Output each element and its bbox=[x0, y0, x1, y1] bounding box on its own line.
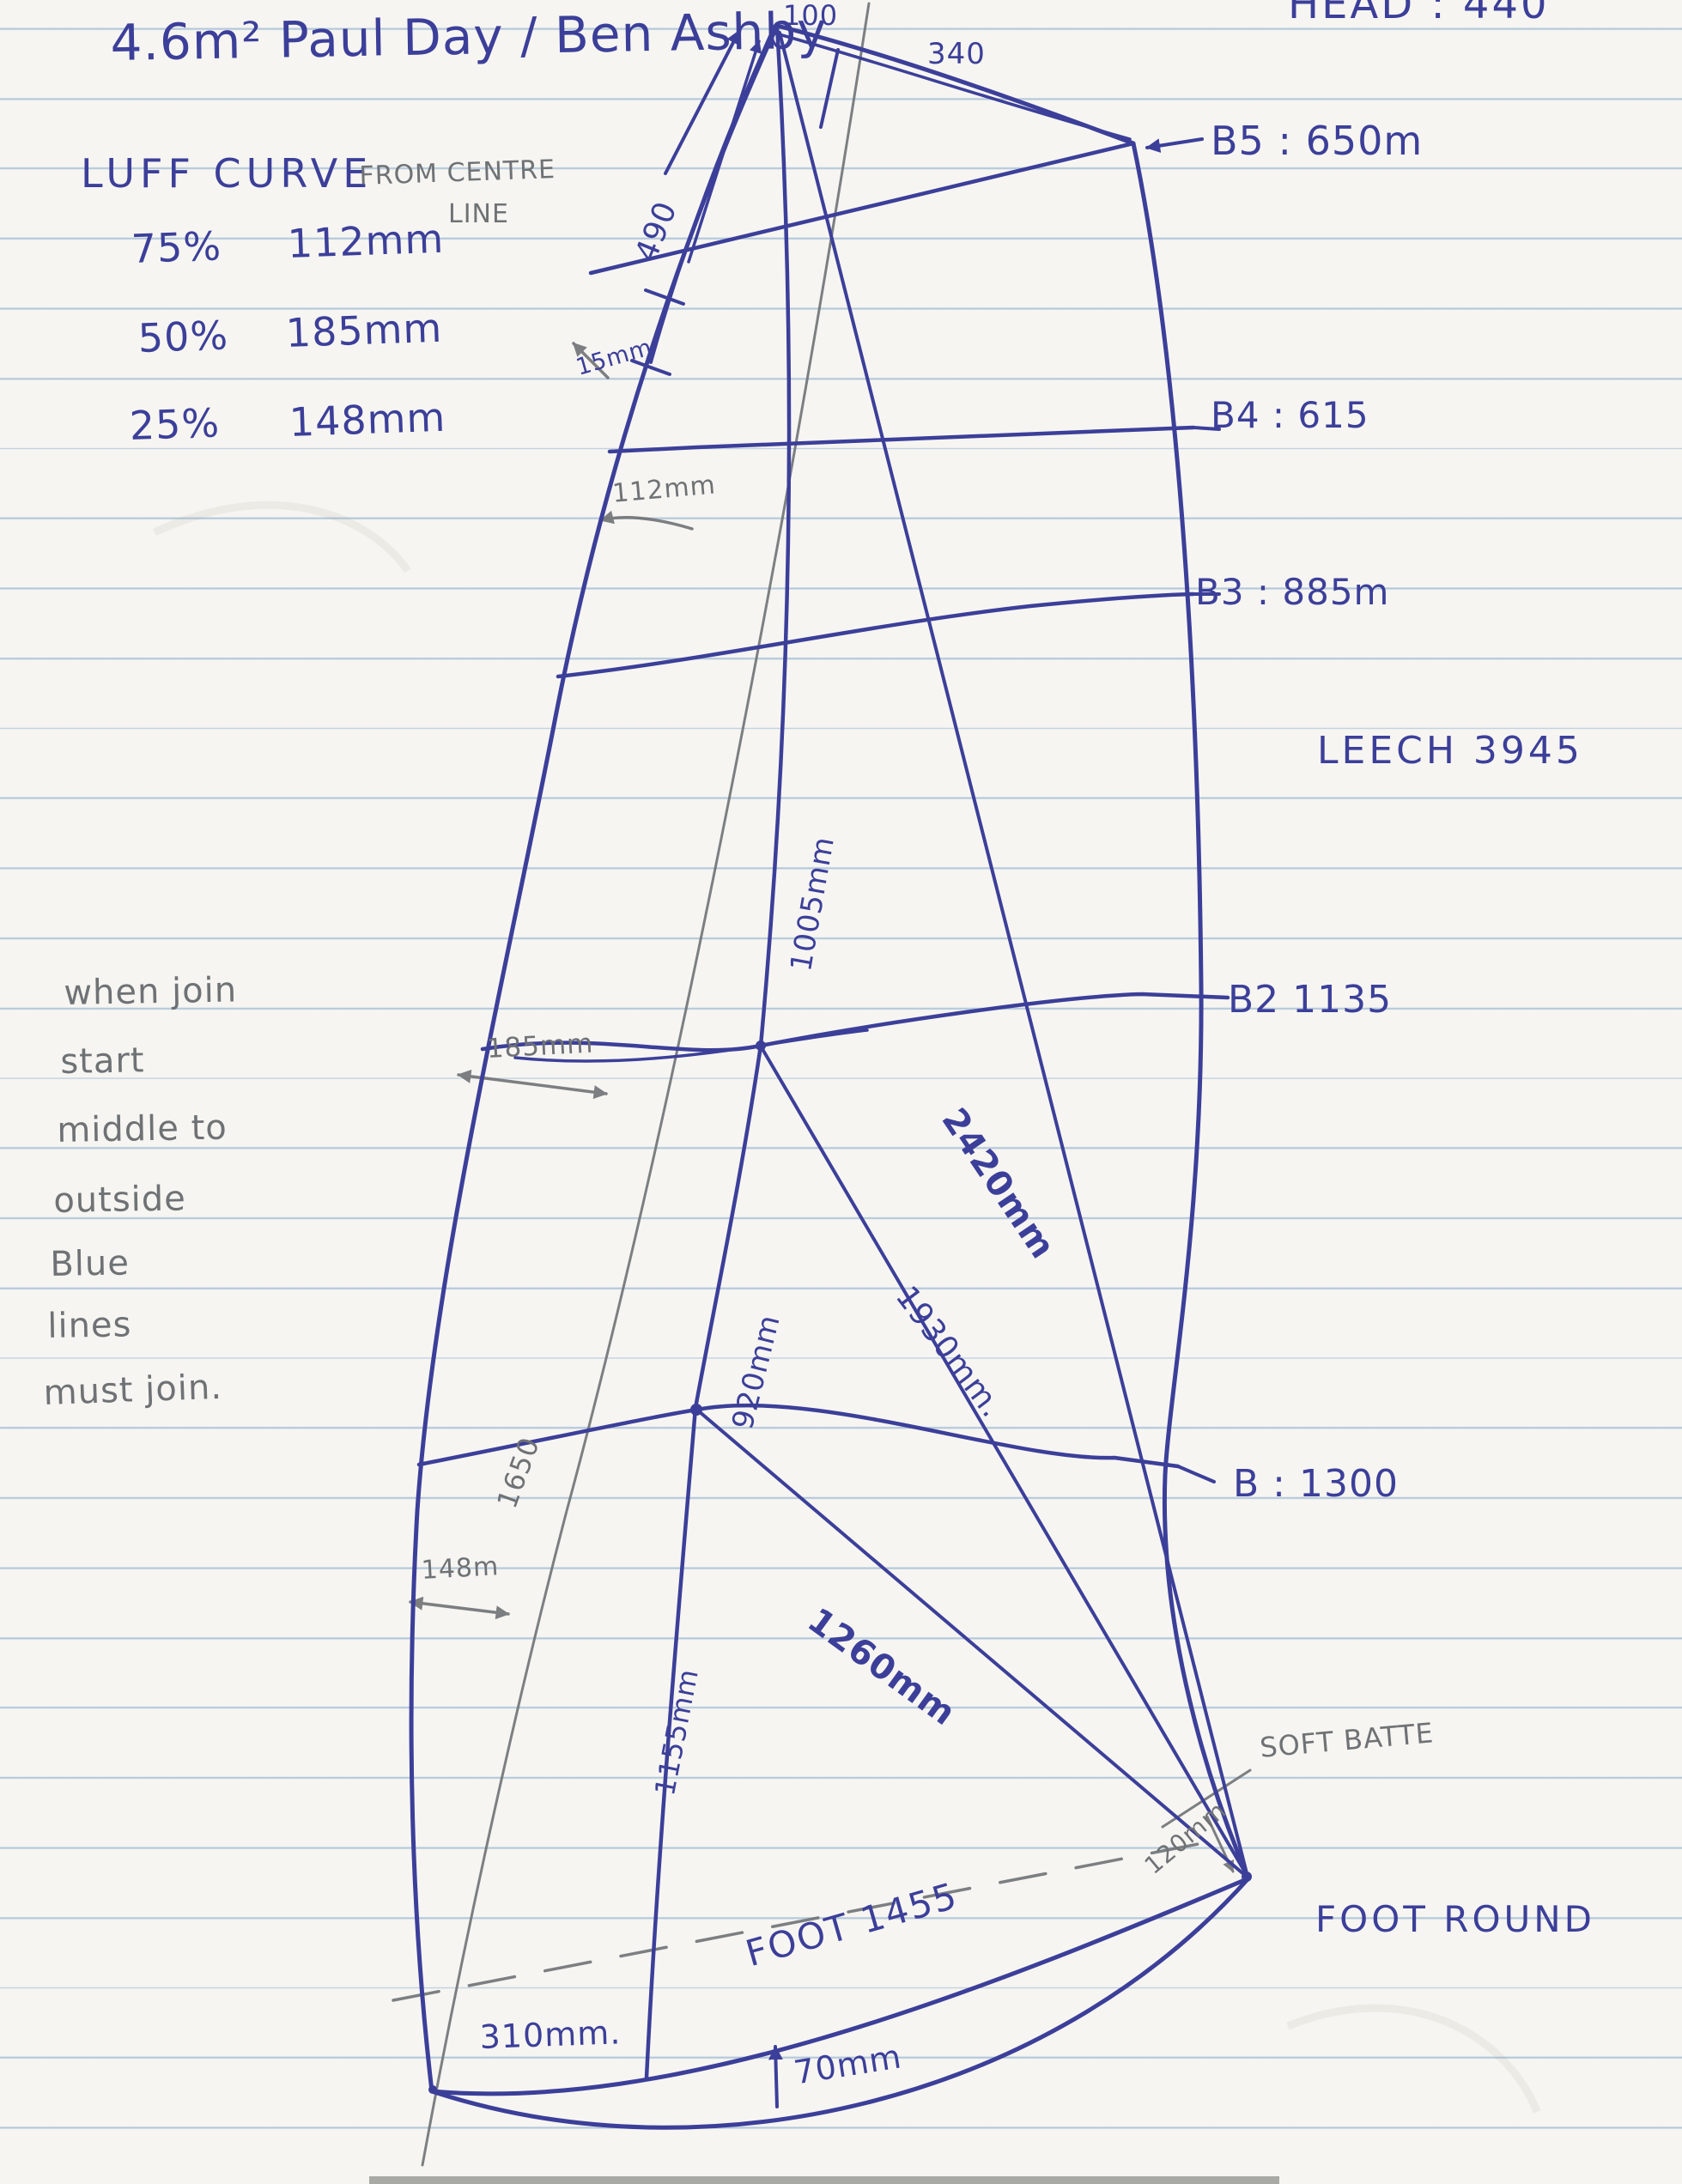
tack-point bbox=[428, 2085, 437, 2094]
sail-plan-sketch bbox=[0, 0, 1682, 2184]
label-head-340: 340 bbox=[927, 39, 986, 70]
luff-curve-row-value: 185mm bbox=[285, 307, 443, 355]
seam-b1-junction bbox=[690, 1404, 702, 1416]
batten-3 bbox=[558, 594, 1193, 676]
seam-b2-junction bbox=[756, 1040, 766, 1051]
arrow-148mm bbox=[410, 1602, 508, 1614]
luff-curve-subheading-2: LINE bbox=[448, 201, 509, 228]
side-note-line: Blue bbox=[50, 1245, 130, 1283]
seam-upper-1005 bbox=[761, 26, 789, 1046]
arrow-70mm bbox=[775, 2047, 777, 2107]
tick-340 bbox=[821, 50, 838, 127]
label-batten-2: B2 1135 bbox=[1228, 980, 1392, 1020]
label-foot-round: FOOT ROUND bbox=[1315, 1901, 1595, 1938]
arrow-112mm bbox=[601, 518, 692, 529]
head-measure-note: HEAD : 440 bbox=[1288, 0, 1550, 26]
side-note-line: outside bbox=[53, 1180, 186, 1219]
batten-4 bbox=[610, 428, 1193, 452]
label-310mm: 310mm. bbox=[479, 2016, 622, 2055]
side-note-line: start bbox=[60, 1042, 145, 1080]
label-batten-1: B : 1300 bbox=[1233, 1465, 1399, 1504]
luff-curve-row-value: 148mm bbox=[288, 397, 446, 444]
side-note-line: must join. bbox=[43, 1369, 223, 1411]
label-batten-3: B3 : 885m bbox=[1195, 573, 1389, 611]
batten-2 bbox=[483, 994, 1228, 1050]
head-arrow-2 bbox=[689, 41, 759, 262]
luff-curve-row-pct: 75% bbox=[131, 225, 222, 270]
label-batten-5: B5 : 650m bbox=[1211, 120, 1423, 161]
luff-curve-row-pct: 25% bbox=[129, 402, 221, 446]
tick-490 bbox=[646, 290, 683, 304]
pencil-smudge bbox=[1288, 2008, 1537, 2112]
luff-curve-row-pct: 50% bbox=[137, 314, 229, 359]
side-note-line: lines bbox=[47, 1307, 132, 1344]
label-batten-4: B4 : 615 bbox=[1211, 397, 1369, 434]
pencil-smudge bbox=[155, 505, 408, 571]
side-note-line: middle to bbox=[57, 1110, 228, 1149]
luff-curve-heading: LUFF CURVE bbox=[81, 153, 373, 194]
clew-point bbox=[1242, 1872, 1252, 1882]
side-note-line: when join bbox=[64, 972, 237, 1011]
label-offset-185mm: 185mm bbox=[486, 1029, 594, 1063]
luff-curve-row-value: 112mm bbox=[287, 218, 445, 265]
page-title: 4.6m² Paul Day / Ben Ashby bbox=[110, 4, 828, 69]
batten-1-leader bbox=[1178, 1466, 1214, 1482]
diagonal-2420 bbox=[780, 33, 1247, 1873]
label-offset-148mm: 148m bbox=[421, 1553, 500, 1584]
label-head-100: 100 bbox=[783, 2, 838, 31]
label-leech-length: LEECH 3945 bbox=[1317, 731, 1583, 771]
b5-leader-arrow bbox=[1147, 139, 1202, 148]
centre-line-pencil bbox=[422, 3, 869, 2165]
luff-curve-subheading-1: FROM CENTRE bbox=[359, 156, 556, 190]
scan-edge bbox=[369, 2176, 1279, 2184]
notebook-page: 4.6m² Paul Day / Ben Ashby HEAD : 440 LU… bbox=[0, 0, 1682, 2184]
